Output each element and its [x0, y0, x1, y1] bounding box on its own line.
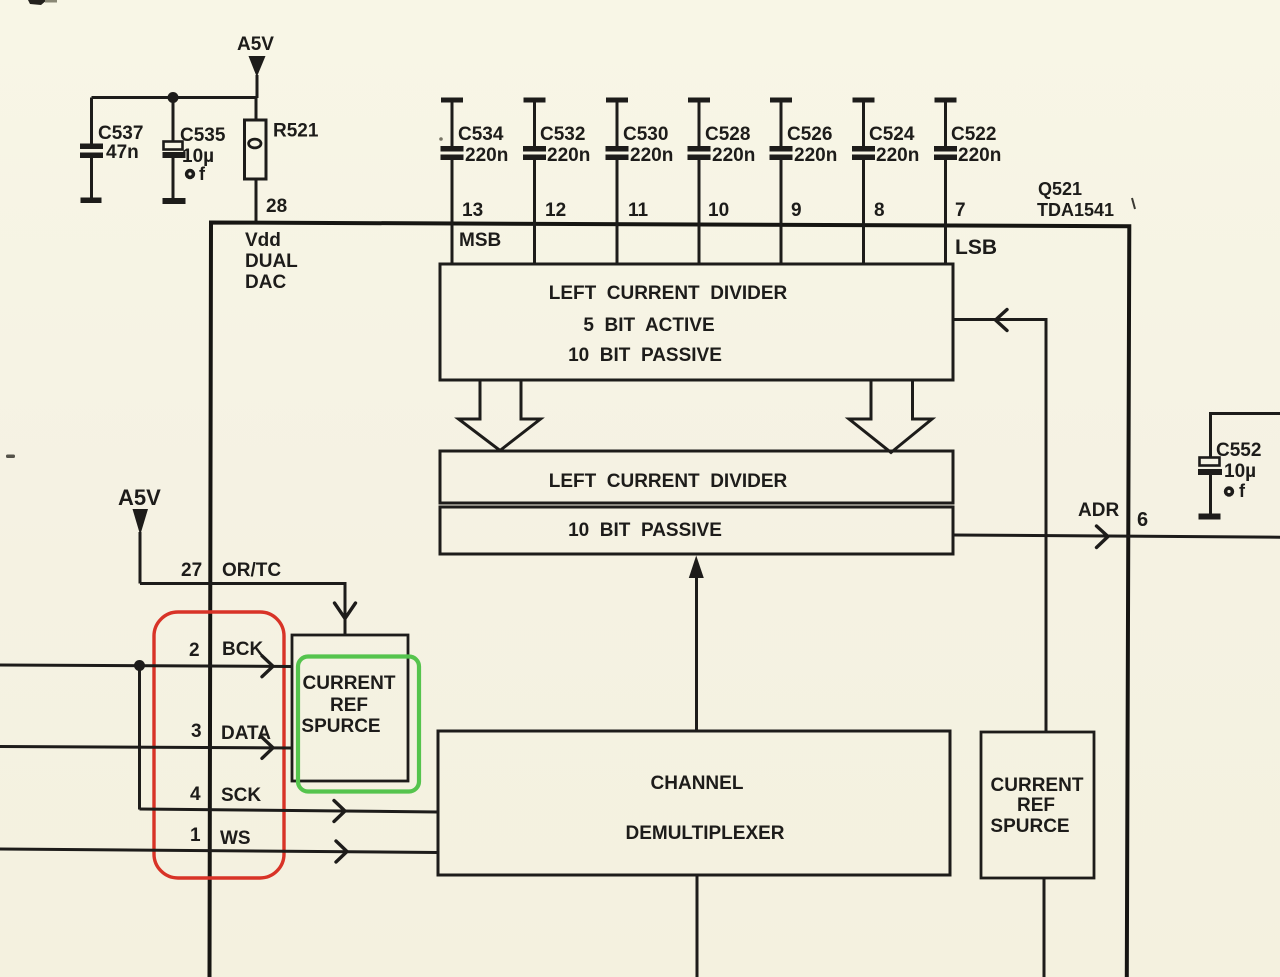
svg-text:f: f	[1239, 481, 1246, 501]
svg-text:13: 13	[462, 200, 483, 221]
svg-text:8: 8	[874, 200, 885, 221]
svg-text:C537: C537	[98, 123, 143, 144]
svg-text:1: 1	[190, 825, 201, 846]
svg-text:CHANNEL: CHANNEL	[651, 773, 744, 794]
svg-text:C535: C535	[180, 125, 226, 146]
svg-text:220n: 220n	[465, 145, 508, 166]
svg-text:5 BIT ACTIVE: 5 BIT ACTIVE	[583, 315, 714, 336]
svg-text:220n: 220n	[712, 145, 755, 166]
svg-text:10 BIT PASSIVE: 10 BIT PASSIVE	[568, 345, 722, 366]
svg-text:10 BIT PASSIVE: 10 BIT PASSIVE	[568, 520, 722, 541]
svg-text:220n: 220n	[794, 145, 837, 166]
svg-text:A5V: A5V	[118, 485, 161, 510]
svg-text:f: f	[199, 164, 206, 184]
svg-text:SPURCE: SPURCE	[301, 716, 380, 737]
svg-text:SPURCE: SPURCE	[990, 816, 1069, 837]
svg-text:C530: C530	[623, 124, 668, 145]
svg-text:C534: C534	[458, 124, 504, 145]
svg-text:220n: 220n	[547, 145, 590, 166]
svg-text:LEFT CURRENT DIVIDER: LEFT CURRENT DIVIDER	[549, 471, 788, 492]
svg-text:R521: R521	[273, 121, 319, 142]
svg-text:SCK: SCK	[221, 785, 261, 806]
svg-text:220n: 220n	[876, 145, 919, 166]
svg-text:CURRENT: CURRENT	[303, 673, 396, 694]
svg-text:DAC: DAC	[245, 272, 286, 293]
svg-text:4: 4	[190, 784, 201, 805]
svg-text:28: 28	[266, 196, 287, 217]
svg-text:ADR: ADR	[1078, 500, 1119, 521]
svg-text:6: 6	[1137, 509, 1148, 531]
svg-text:WS: WS	[220, 828, 251, 849]
svg-text:CURRENT: CURRENT	[991, 775, 1084, 796]
svg-text:12: 12	[545, 200, 566, 221]
svg-text:OR/TC: OR/TC	[222, 560, 281, 581]
svg-text:9: 9	[791, 200, 802, 221]
svg-text:C526: C526	[787, 124, 832, 145]
svg-text:11: 11	[628, 200, 649, 221]
svg-text:BCK: BCK	[222, 639, 263, 660]
svg-text:C522: C522	[951, 124, 996, 145]
svg-text:A5V: A5V	[237, 34, 274, 55]
svg-text:TDA1541: TDA1541	[1037, 200, 1114, 220]
svg-text:C532: C532	[540, 124, 585, 145]
svg-text:DUAL: DUAL	[245, 251, 298, 272]
svg-text:10: 10	[708, 200, 729, 221]
svg-text:C528: C528	[705, 124, 750, 145]
svg-text:LEFT CURRENT DIVIDER: LEFT CURRENT DIVIDER	[549, 283, 788, 304]
svg-text:DEMULTIPLEXER: DEMULTIPLEXER	[625, 823, 784, 844]
svg-text:LSB: LSB	[955, 236, 997, 259]
svg-text:Q521: Q521	[1038, 179, 1082, 199]
svg-text:10µ: 10µ	[1224, 461, 1256, 482]
svg-text:2: 2	[189, 640, 200, 661]
svg-text:REF: REF	[1017, 795, 1055, 816]
svg-text:220n: 220n	[630, 145, 673, 166]
svg-text:REF: REF	[330, 695, 368, 716]
svg-text:47n: 47n	[106, 142, 139, 163]
svg-text:MSB: MSB	[459, 230, 501, 251]
svg-text:Vdd: Vdd	[245, 230, 281, 251]
svg-text:27: 27	[181, 560, 202, 581]
svg-text:7: 7	[955, 200, 966, 221]
svg-text:3: 3	[191, 721, 202, 742]
svg-text:C552: C552	[1216, 440, 1261, 461]
svg-text:220n: 220n	[958, 145, 1001, 166]
svg-text:C524: C524	[869, 124, 915, 145]
